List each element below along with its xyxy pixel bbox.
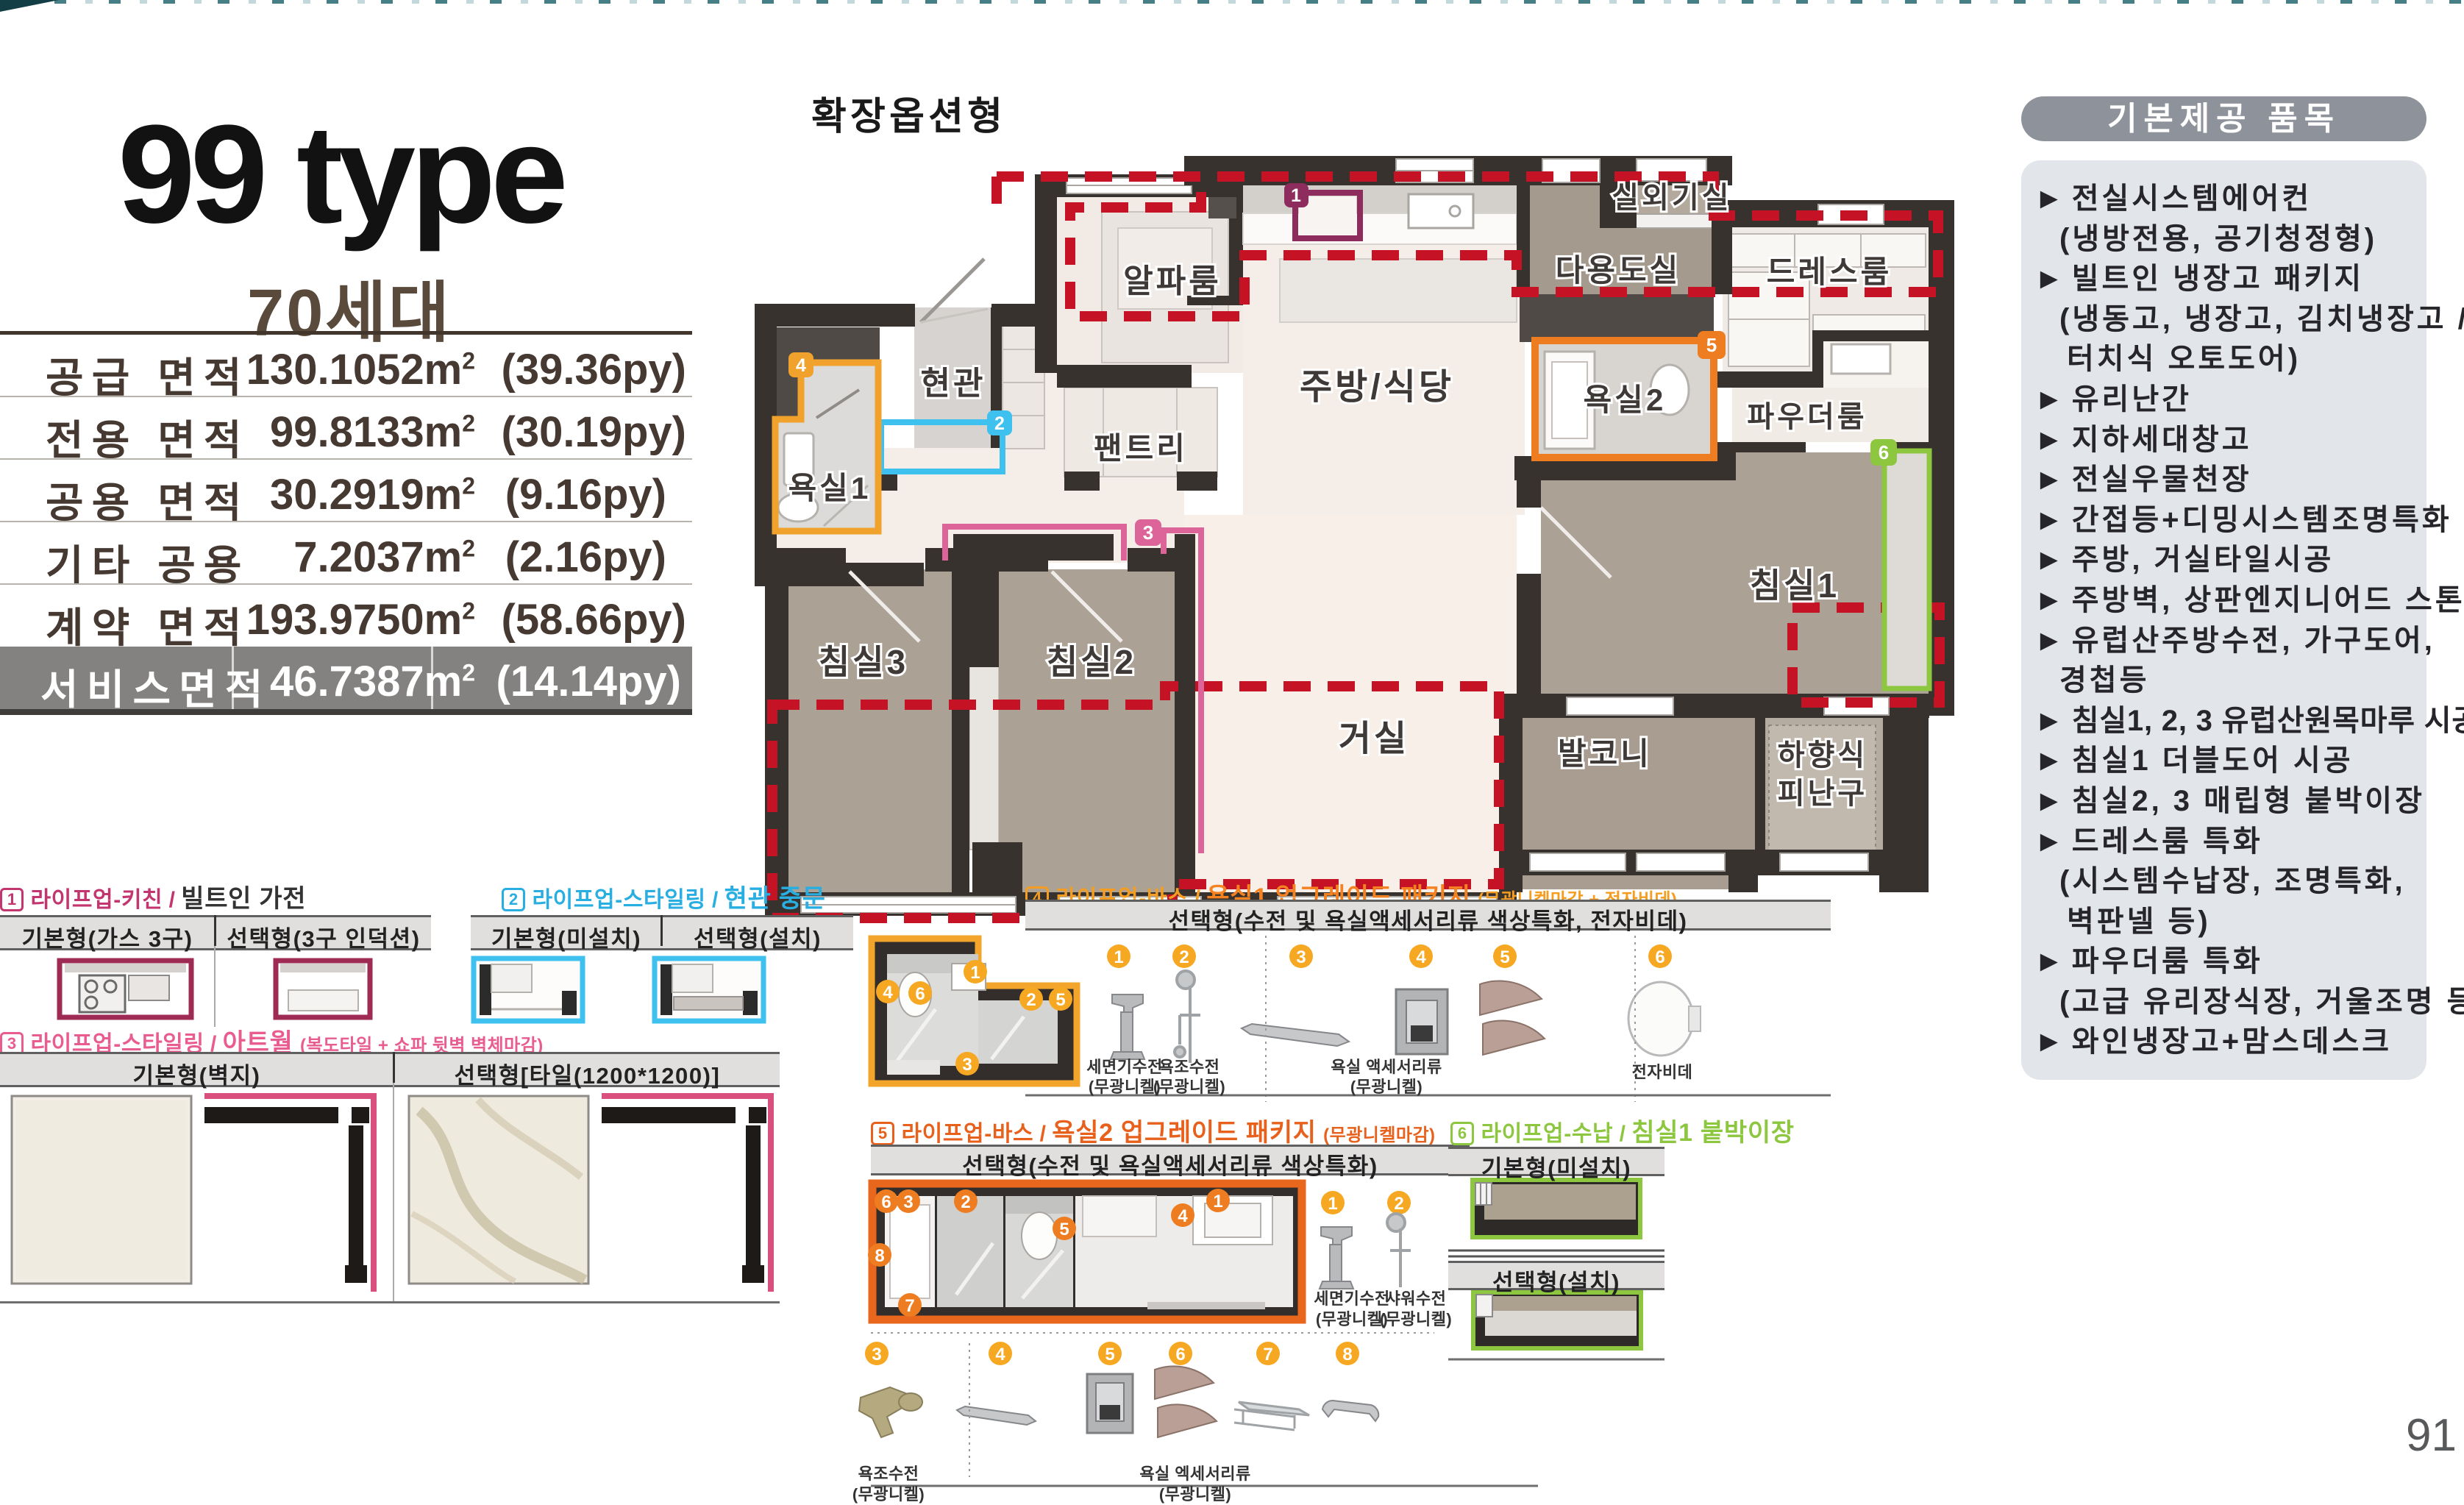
- svg-text:4: 4: [1178, 1206, 1188, 1226]
- svg-text:6: 6: [1175, 1345, 1185, 1365]
- svg-text:2: 2: [1026, 990, 1036, 1010]
- svg-text:1: 1: [1114, 947, 1123, 967]
- svg-text:3: 3: [962, 1055, 972, 1075]
- svg-text:1: 1: [1328, 1194, 1337, 1214]
- svg-text:1: 1: [970, 963, 980, 983]
- svg-text:4: 4: [995, 1345, 1005, 1365]
- svg-text:8: 8: [875, 1246, 884, 1266]
- svg-text:4: 4: [1416, 947, 1426, 967]
- svg-text:2: 2: [1394, 1194, 1403, 1214]
- svg-text:5: 5: [1500, 947, 1509, 967]
- svg-text:4: 4: [883, 983, 893, 1003]
- svg-text:2: 2: [1179, 947, 1189, 967]
- svg-text:5: 5: [1059, 1220, 1069, 1239]
- svg-text:2: 2: [961, 1192, 970, 1212]
- svg-text:3: 3: [1296, 947, 1306, 967]
- svg-text:6: 6: [1655, 947, 1664, 967]
- svg-text:1: 1: [1213, 1192, 1222, 1212]
- svg-text:6: 6: [881, 1192, 891, 1212]
- svg-text:5: 5: [1105, 1345, 1114, 1365]
- svg-text:7: 7: [1263, 1345, 1272, 1365]
- svg-text:3: 3: [872, 1345, 881, 1365]
- svg-text:3: 3: [903, 1192, 913, 1212]
- svg-text:7: 7: [905, 1296, 914, 1316]
- svg-text:6: 6: [915, 984, 925, 1004]
- svg-text:5: 5: [1055, 990, 1065, 1010]
- svg-text:8: 8: [1342, 1345, 1352, 1365]
